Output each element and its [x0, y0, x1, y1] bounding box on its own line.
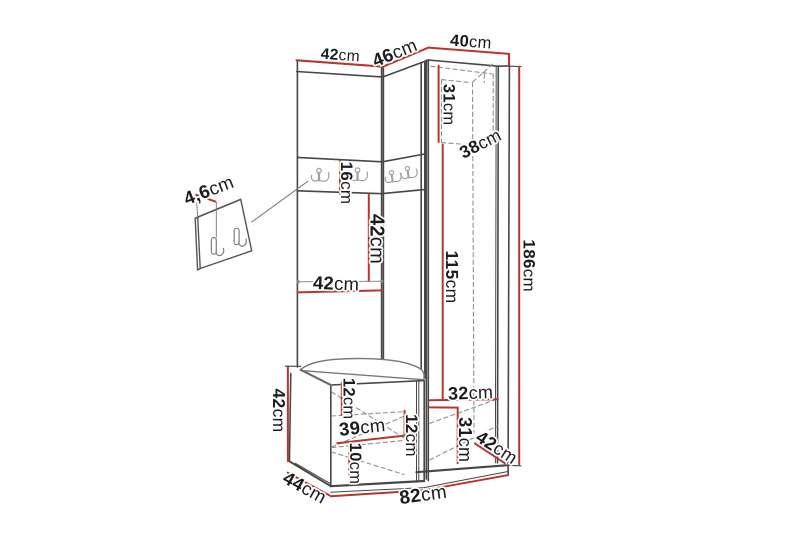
svg-text:31cm: 31cm [440, 84, 458, 126]
svg-text:40cm: 40cm [449, 31, 492, 52]
svg-text:12cm: 12cm [402, 414, 421, 457]
svg-text:31cm: 31cm [455, 417, 475, 462]
svg-text:12cm: 12cm [340, 378, 358, 420]
svg-text:42cm: 42cm [269, 388, 289, 432]
svg-text:10cm: 10cm [346, 443, 364, 485]
svg-text:42cm: 42cm [320, 46, 360, 66]
svg-text:42cm: 42cm [313, 272, 360, 295]
svg-text:115cm: 115cm [442, 250, 462, 303]
svg-text:32cm: 32cm [448, 382, 494, 404]
svg-text:16cm: 16cm [337, 162, 356, 205]
svg-text:186cm: 186cm [519, 239, 538, 292]
svg-text:42cm: 42cm [365, 214, 387, 264]
